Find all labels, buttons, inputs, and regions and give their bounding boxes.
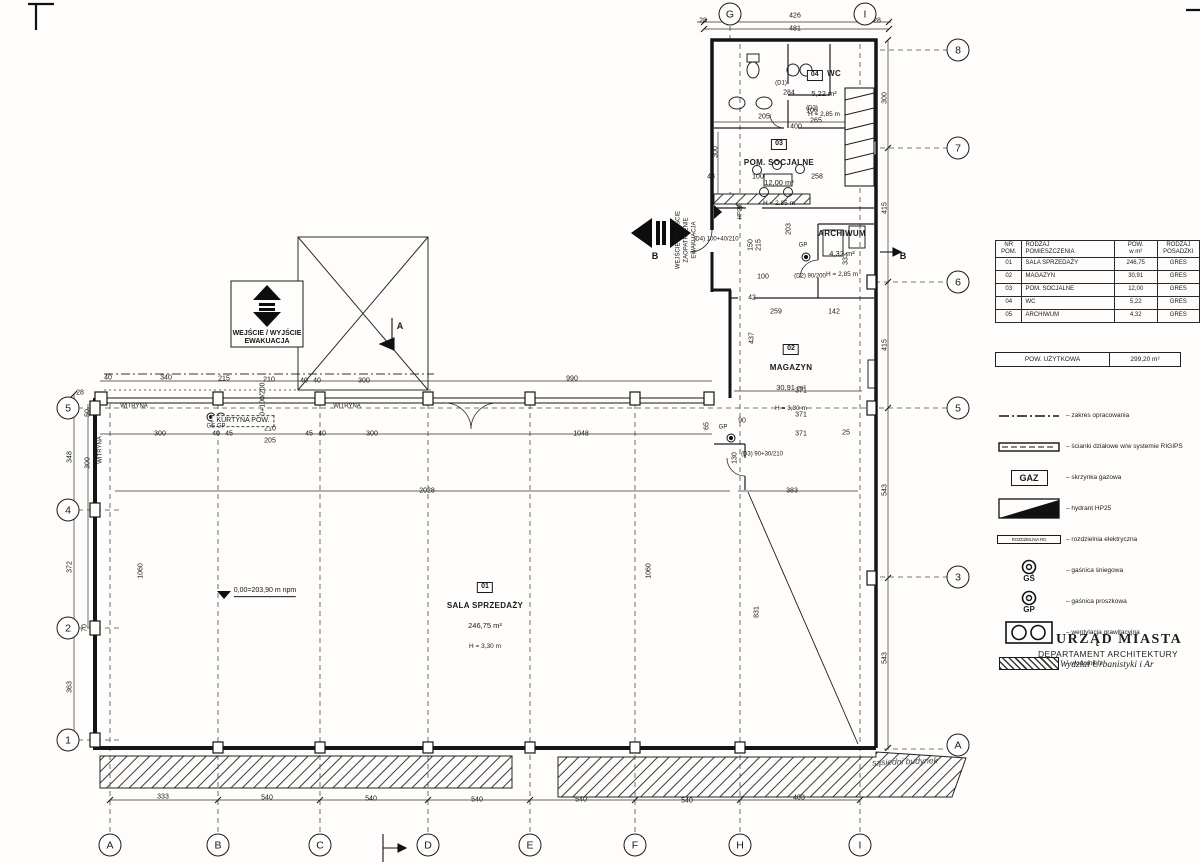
level-label: 0,00=203,90 m npm	[234, 587, 296, 597]
shopwindow-label: WITRYNA	[98, 436, 105, 464]
room-area: 5,22 m²	[811, 89, 836, 98]
dimension-label: 284	[783, 90, 795, 97]
dimension-label: 403	[793, 795, 805, 802]
legend-label: – zakres opracowania	[1066, 412, 1129, 419]
axis-marker-6: 6	[947, 271, 970, 294]
door-tag: (D4) 100+40/210	[693, 237, 738, 244]
room-number: 03	[771, 139, 787, 150]
dimension-label: 300	[85, 457, 92, 469]
dimension-label: 142	[828, 309, 840, 316]
room-height: H = 3,30 m	[775, 405, 807, 412]
axis-marker-A: A	[947, 734, 970, 757]
legend-label: – hydrant HP25	[1066, 505, 1111, 512]
axis-marker-4: 4	[57, 499, 80, 522]
dimension-label: 45	[305, 431, 313, 438]
dimension-label: 28	[699, 18, 707, 25]
dimension-label: 363	[67, 681, 74, 693]
dimension-label: 300	[154, 431, 166, 438]
table-header-row: NRPOM. RODZAJPOMIESZCZENIA POW.w m² RODZ…	[996, 241, 1200, 258]
scan-marks	[28, 4, 1200, 30]
stamp-division: Wydział Urbanistyki i Ar	[1060, 660, 1182, 670]
dimension-label: 426	[789, 13, 801, 20]
dimension-label: 205	[758, 114, 770, 121]
room-height: H = 3,30 m	[469, 643, 501, 650]
dimension-label: 300	[358, 378, 370, 385]
partition-wall-icon	[992, 441, 1066, 453]
dimension-label: 1060	[138, 563, 145, 579]
room-label-archiwum: ARCHIWUM 4,32 m² H = 2,85 m	[818, 222, 866, 282]
dimension-label: 40	[318, 431, 326, 438]
dimension-label: 70	[82, 624, 89, 632]
room-number: 01	[477, 582, 493, 593]
dimension-label: 300	[713, 146, 720, 158]
stamp-department: DEPARTAMENT ARCHITEKTURY	[1038, 649, 1182, 659]
dimension-label: 50	[85, 409, 92, 417]
axis-marker-8: 8	[947, 39, 970, 62]
header-rodzaj: RODZAJPOMIESZCZENIA	[1022, 241, 1114, 258]
legend-item: – ścianki działowe w/w systemie RIGIPS	[992, 431, 1200, 462]
axis-marker-5: 5	[57, 397, 80, 420]
room-area: 246,75 m²	[468, 621, 502, 630]
legend-item: ROZDZIELNIA RG – rozdzielnia elektryczna	[992, 524, 1200, 555]
exterior-stairs	[845, 88, 874, 186]
hydrant-icon	[992, 498, 1066, 519]
room-label-sala-sprzedazy: 01 SALA SPRZEDAŻY 246,75 m² H = 3,30 m	[447, 574, 523, 654]
supply-entrance-label: WEJŚCIE / WYJŚCIE	[676, 211, 683, 269]
axis-marker-3: 3	[947, 566, 970, 589]
legend-label: – skrzynka gazowa	[1066, 474, 1121, 481]
room-name: WC	[827, 69, 841, 78]
axis-marker-D: D	[417, 834, 440, 857]
table-row: 02 MAGAZYN 30,91 GRES	[996, 270, 1200, 283]
shopwindow-label: WITRYNA	[120, 404, 148, 411]
room-schedule-table: NRPOM. RODZAJPOMIESZCZENIA POW.w m² RODZ…	[995, 240, 1200, 323]
room-name: MAGAZYN	[770, 363, 813, 372]
dimension-label: 25	[842, 430, 850, 437]
dimension-label: 831	[754, 606, 761, 618]
room-area: 30,91 m²	[776, 383, 806, 392]
axis-marker-2: 2	[57, 617, 80, 640]
usable-area-summary: POW. UŻYTKOWA 299,20 m²	[995, 352, 1181, 367]
table-row: 03 POM. SOCJALNE 12,00 GRES	[996, 283, 1200, 296]
existing-building-hatch	[100, 752, 966, 797]
dimension-label: 333	[157, 794, 169, 801]
floor-plan-sheet: 01 SALA SPRZEDAŻY 246,75 m² H = 3,30 m 0…	[0, 0, 1200, 865]
dimension-label: 1048	[573, 431, 589, 438]
dimension-label: 205	[264, 438, 276, 445]
dimension-label: 43	[707, 174, 715, 181]
header-nr: NRPOM.	[996, 241, 1022, 258]
dimension-label: 130	[732, 452, 739, 464]
axis-marker-H: H	[729, 834, 752, 857]
dimension-label: 540	[365, 796, 377, 803]
room-name: POM. SOCJALNE	[744, 158, 814, 167]
axis-marker-7: 7	[947, 137, 970, 160]
electrical-board-icon: ROZDZIELNIA RG	[992, 535, 1066, 544]
usable-area-label: POW. UŻYTKOWA	[996, 353, 1110, 366]
axis-marker-F: F	[624, 834, 647, 857]
boundary-line-icon	[992, 413, 1066, 419]
table-row: 05 ARCHIWUM 4,32 GRES	[996, 309, 1200, 322]
table-row: 04 WC 5,22 GRES	[996, 296, 1200, 309]
axis-marker-I: I	[854, 3, 877, 26]
dimension-label: 383	[786, 488, 798, 495]
dimension-label: 45	[225, 431, 233, 438]
room-name: ARCHIWUM	[818, 229, 866, 238]
dimension-label: 203	[786, 223, 793, 235]
stamp-office-name: URZĄD MIASTA	[1056, 632, 1182, 648]
columns	[90, 141, 876, 753]
extinguisher-label: GP	[719, 425, 728, 432]
axis-marker-I: I	[849, 834, 872, 857]
room-height: H = 2,85 m	[763, 200, 795, 207]
dimension-label: 348	[67, 451, 74, 463]
room-label-magazyn: 02 MAGAZYN 30,91 m² H = 3,30 m	[770, 336, 813, 416]
table-row: 01 SALA SPRZEDAŻY 246,75 GRES	[996, 257, 1200, 270]
dimension-label: 2028	[419, 488, 435, 495]
dimension-label: 400	[790, 124, 802, 131]
door-tag: (D1)	[775, 81, 787, 88]
extinguisher-label: GP	[799, 243, 808, 250]
level-marker	[217, 591, 231, 599]
extinguisher-label: GŚ GP	[206, 424, 225, 431]
legend-label: – rozdzielnia elektryczna	[1066, 536, 1137, 543]
room-number: 04	[807, 70, 823, 81]
axis-marker-1: 1	[57, 729, 80, 752]
dimension-label: 481	[789, 26, 801, 33]
legend-label: – ścianki działowe w/w systemie RIGIPS	[1066, 443, 1183, 450]
dimension-label: 540	[471, 797, 483, 804]
dimension-label: 40	[313, 378, 321, 385]
dimension-label: 990	[566, 376, 578, 383]
axis-marker-5: 5	[947, 397, 970, 420]
dimension-label: 540	[261, 795, 273, 802]
section-b-label: B	[652, 252, 659, 262]
shopwindow-label: WITRYNA	[333, 404, 361, 411]
dimension-label: 1060	[646, 563, 653, 579]
room-area: 12,00 m²	[764, 178, 794, 187]
legend-item: GAZ – skrzynka gazowa	[992, 462, 1200, 493]
dimension-label: 215	[218, 376, 230, 383]
approval-stamp: URZĄD MIASTA DEPARTAMENT ARCHITEKTURY Wy…	[1038, 632, 1182, 670]
dimension-label: 65	[704, 422, 711, 430]
room-number: 02	[783, 344, 799, 355]
legend-label: – gaśnica proszkowa	[1066, 598, 1127, 605]
legend-item: – hydrant HP25	[992, 493, 1200, 524]
dimension-label: 150	[748, 239, 755, 251]
dimension-label: 415	[882, 202, 889, 214]
axis-marker-E: E	[519, 834, 542, 857]
dimension-label: 42	[748, 295, 756, 302]
dimension-label: 340	[160, 375, 172, 382]
dimension-label: 40	[300, 378, 308, 385]
supply-entrance-label: ZAOPATRZENIE	[684, 217, 691, 262]
dimension-label: 40	[104, 375, 112, 382]
room-height: H = 2,85 m	[826, 271, 858, 278]
dimension-label: 437	[749, 332, 756, 344]
dimension-label: 300	[882, 92, 889, 104]
room-height: H = 2,85 m	[808, 111, 840, 118]
axis-marker-G: G	[719, 3, 742, 26]
dimension-label: 300	[366, 431, 378, 438]
legend-item: – zakres opracowania	[992, 400, 1200, 431]
room-label-pom-socjalne: 03 POM. SOCJALNE 12,00 m² H = 2,85 m	[744, 131, 814, 211]
room-name: SALA SPRZEDAŻY	[447, 601, 523, 610]
dimension-label: 540	[681, 798, 693, 805]
dimension-label: 371	[795, 431, 807, 438]
dimension-label: 540	[575, 797, 587, 804]
gas-box-icon: GAZ	[992, 470, 1066, 486]
dimension-label: 90	[738, 418, 746, 425]
legend-item: GŚ – gaśnica śniegowa	[992, 555, 1200, 586]
axis-marker-B: B	[207, 834, 230, 857]
skylight-cross	[298, 237, 428, 390]
dimension-label: 543	[882, 652, 889, 664]
door-tag: (D3) 90+30/210	[741, 452, 783, 459]
dimension-label: 372	[67, 561, 74, 573]
evac-entrance-label: WEJŚCIE / WYJŚCIE	[233, 330, 302, 338]
legend-label: – gaśnica śniegowa	[1066, 567, 1123, 574]
axis-marker-C: C	[309, 834, 332, 857]
room-label-wc: 04 WC 5,22 m² H = 2,85 m	[807, 62, 841, 122]
usable-area-value: 299,20 m²	[1110, 353, 1180, 366]
dimension-label: 543	[882, 484, 889, 496]
dimension-label: 100	[757, 274, 769, 281]
legend-item: GP – gaśnica proszkowa	[992, 586, 1200, 617]
dimension-label: 415	[882, 339, 889, 351]
room-area: 4,32 m²	[829, 249, 854, 258]
powder-extinguisher-icon: GP	[992, 590, 1066, 614]
header-posadzka: RODZAJPOSADZKI	[1157, 241, 1199, 258]
snow-extinguisher-icon: GŚ	[992, 559, 1066, 583]
header-pow: POW.w m²	[1114, 241, 1157, 258]
dimension-label: 28	[76, 390, 84, 397]
section-a-label: A	[397, 322, 404, 332]
dimension-label: 40	[212, 431, 220, 438]
evac-entrance-label: EWAKUACJA	[244, 338, 289, 346]
dimension-label: 259	[770, 309, 782, 316]
dimension-label: 215	[756, 239, 763, 251]
section-b-label: B	[900, 252, 907, 262]
axis-marker-A: A	[99, 834, 122, 857]
